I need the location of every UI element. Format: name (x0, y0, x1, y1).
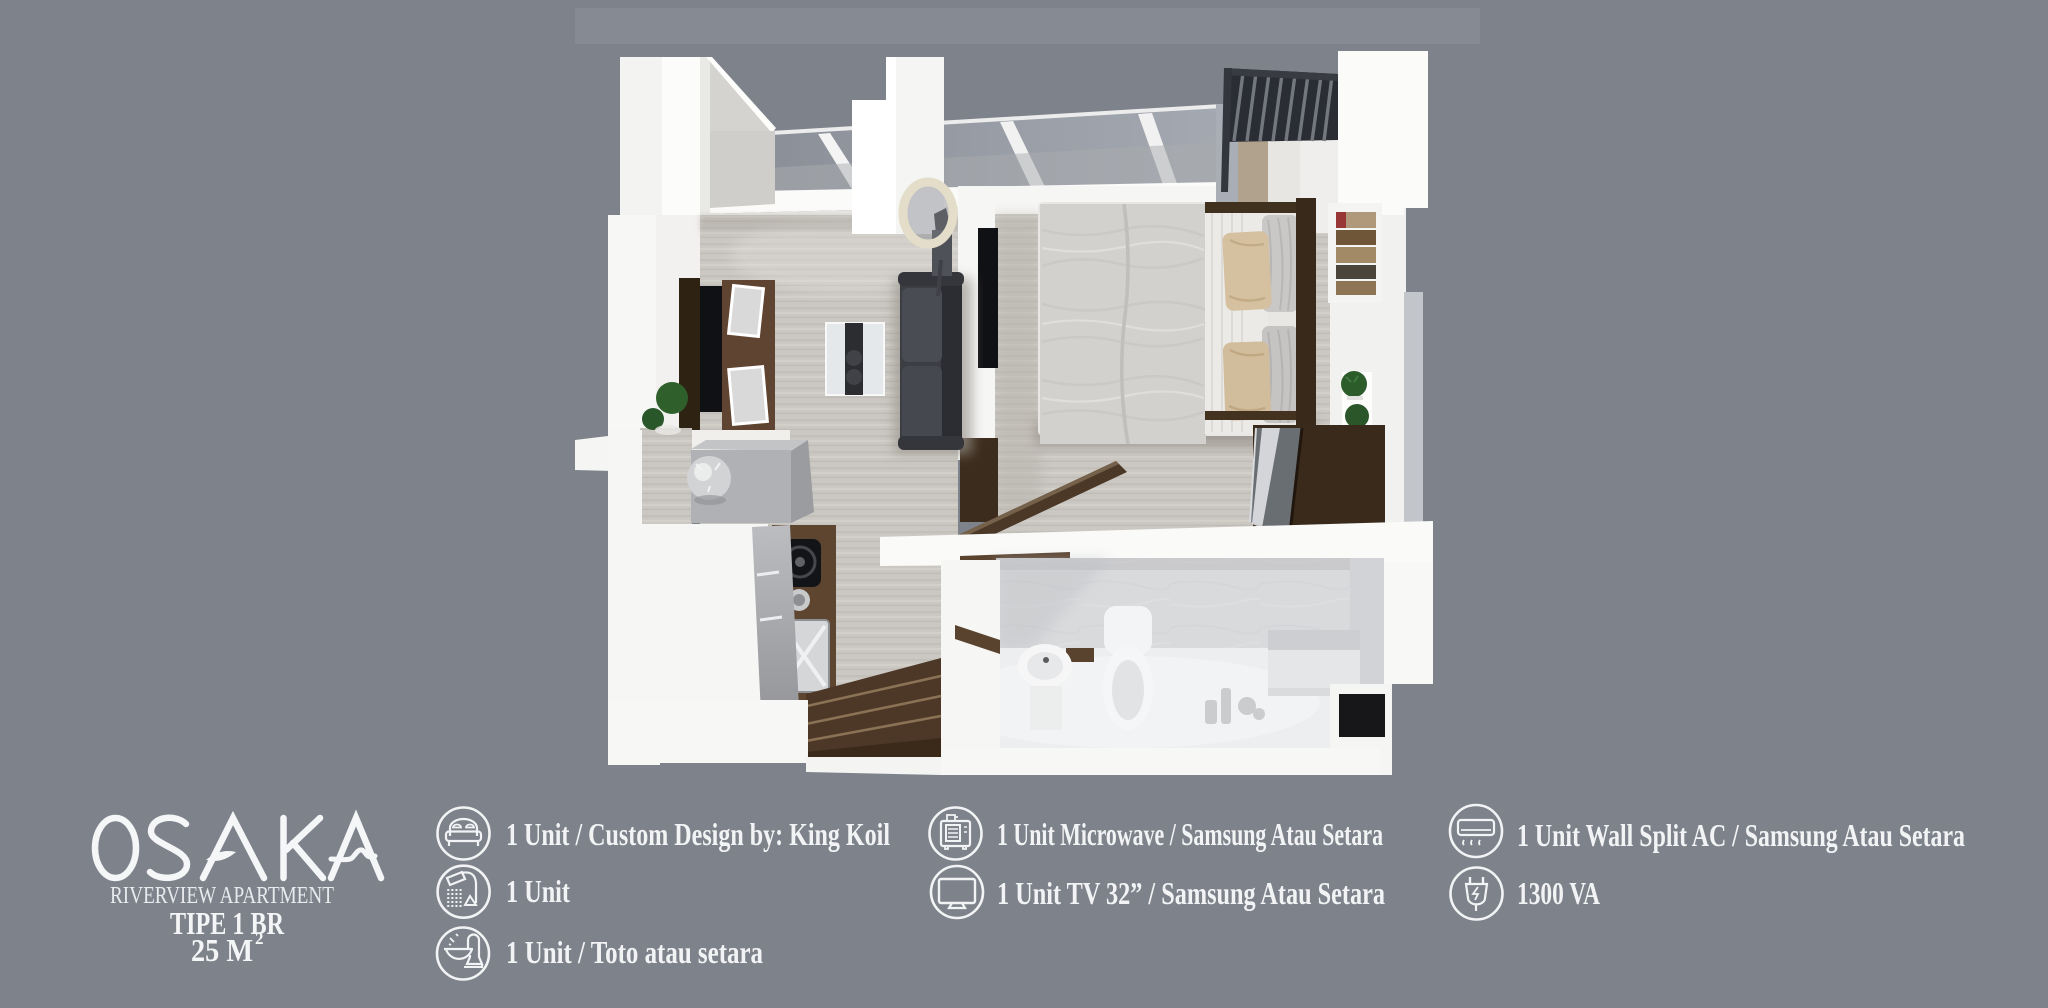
svg-text:2: 2 (255, 929, 264, 948)
svg-text:1 Unit Wall Split AC / Samsung: 1 Unit Wall Split AC / Samsung Atau Seta… (1517, 817, 1965, 853)
svg-text:1 Unit TV 32” / Samsung Atau S: 1 Unit TV 32” / Samsung Atau Setara (997, 875, 1385, 911)
svg-text:1 Unit: 1 Unit (506, 873, 570, 909)
svg-text:1300 VA: 1300 VA (1517, 875, 1600, 911)
svg-text:1 Unit / Toto atau setara: 1 Unit / Toto atau setara (506, 934, 763, 970)
svg-text:1 Unit Microwave / Samsung Ata: 1 Unit Microwave / Samsung Atau Setara (997, 816, 1383, 852)
svg-text:1 Unit / Custom Design by: Kin: 1 Unit / Custom Design by: King Koil (506, 816, 890, 852)
svg-text:25 M: 25 M (191, 932, 253, 968)
